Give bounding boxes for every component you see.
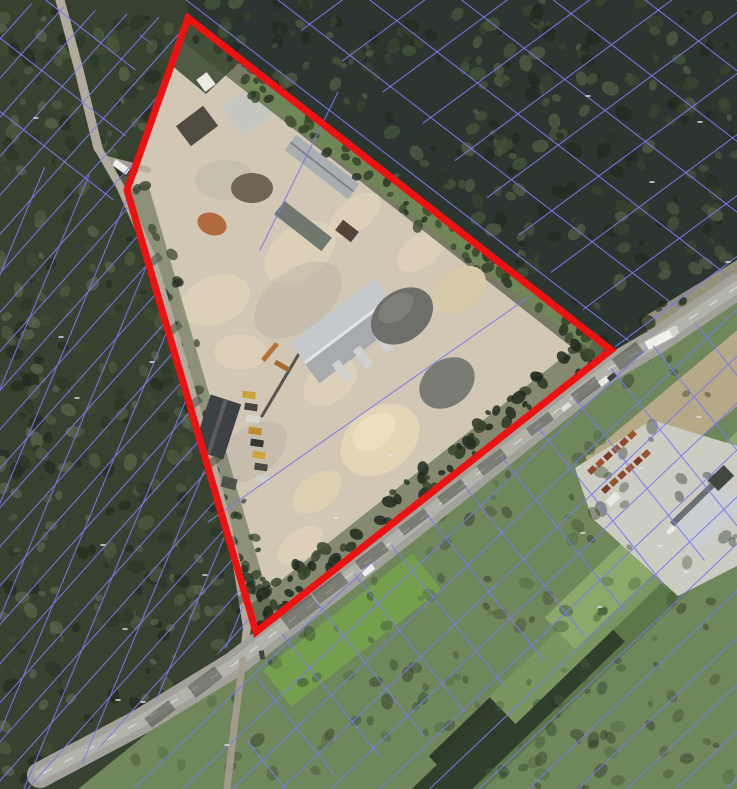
parcel-point-marker [697,416,702,418]
parcel-point-marker [334,517,339,519]
parcel-point-marker [123,628,128,630]
parcel-point-marker [581,532,586,534]
orthophoto-canvas[interactable] [0,0,737,789]
tree-canopy-blob [677,103,694,116]
parcel-point-marker [150,361,155,363]
parcel-point-marker [698,121,703,123]
parcel-point-marker [726,261,731,263]
parcel-point-marker [684,571,689,573]
parcel-point-marker [225,744,230,746]
parcel-point-marker [59,336,64,338]
parcel-point-marker [75,397,80,399]
parcel-point-marker [658,545,663,547]
parcel-point-marker [141,701,146,703]
parcel-point-marker [586,95,591,97]
tree-canopy-blob [459,180,466,189]
parcel-point-marker [598,606,603,608]
parcel-point-marker [203,574,208,576]
debris-pile [231,173,273,203]
parcel-point-marker [388,454,393,456]
aerial-map-view[interactable] [0,0,737,789]
tree-canopy-blob [658,300,667,307]
parcel-point-marker [34,117,39,119]
parcel-point-marker [116,699,121,701]
parcel-point-marker [650,181,655,183]
sand-wash [214,334,266,370]
parcel-point-marker [101,544,106,546]
parcel-point-marker [639,467,644,469]
